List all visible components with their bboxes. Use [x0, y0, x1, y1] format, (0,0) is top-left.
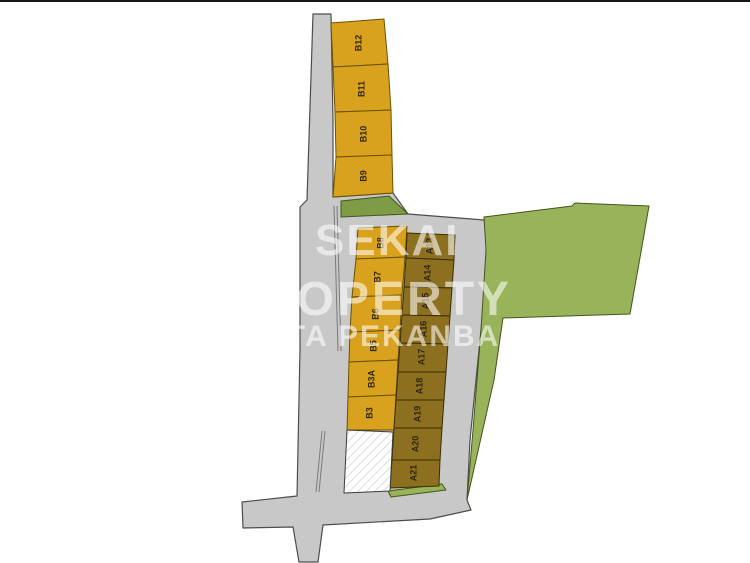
plot-label: B6: [370, 308, 380, 320]
plot-label: B5: [368, 340, 378, 352]
plot-label: B12: [353, 35, 363, 52]
plot-label: A13: [424, 238, 434, 255]
plot-label: B8: [375, 237, 385, 249]
plot-label: B7: [372, 271, 382, 283]
plot-label: A18: [414, 378, 424, 395]
site-plan-screenshot: B12 B11 B10 B9 B8 B7 B6 B5 B3A B3: [0, 0, 750, 563]
plot-label: A21: [408, 465, 418, 482]
plot-label: B3A: [366, 370, 376, 389]
plot-label: A16: [418, 321, 428, 338]
plot-label: A17: [416, 349, 426, 366]
plot-label: A20: [410, 436, 420, 453]
plot-unlabeled-hatched: [344, 430, 393, 493]
plot-label: A19: [412, 406, 422, 423]
plot-label: B11: [356, 81, 366, 97]
plot-label: B10: [358, 126, 368, 143]
plot-column-top: B12 B11 B10 B9: [331, 19, 393, 197]
plot-label: A14: [422, 265, 432, 282]
plot-label: B3: [364, 407, 374, 419]
site-plan-map: B12 B11 B10 B9 B8 B7 B6 B5 B3A B3: [0, 0, 750, 563]
plot-label: B9: [358, 170, 368, 182]
green-field: [467, 203, 649, 500]
plot-label: A15: [420, 293, 430, 310]
